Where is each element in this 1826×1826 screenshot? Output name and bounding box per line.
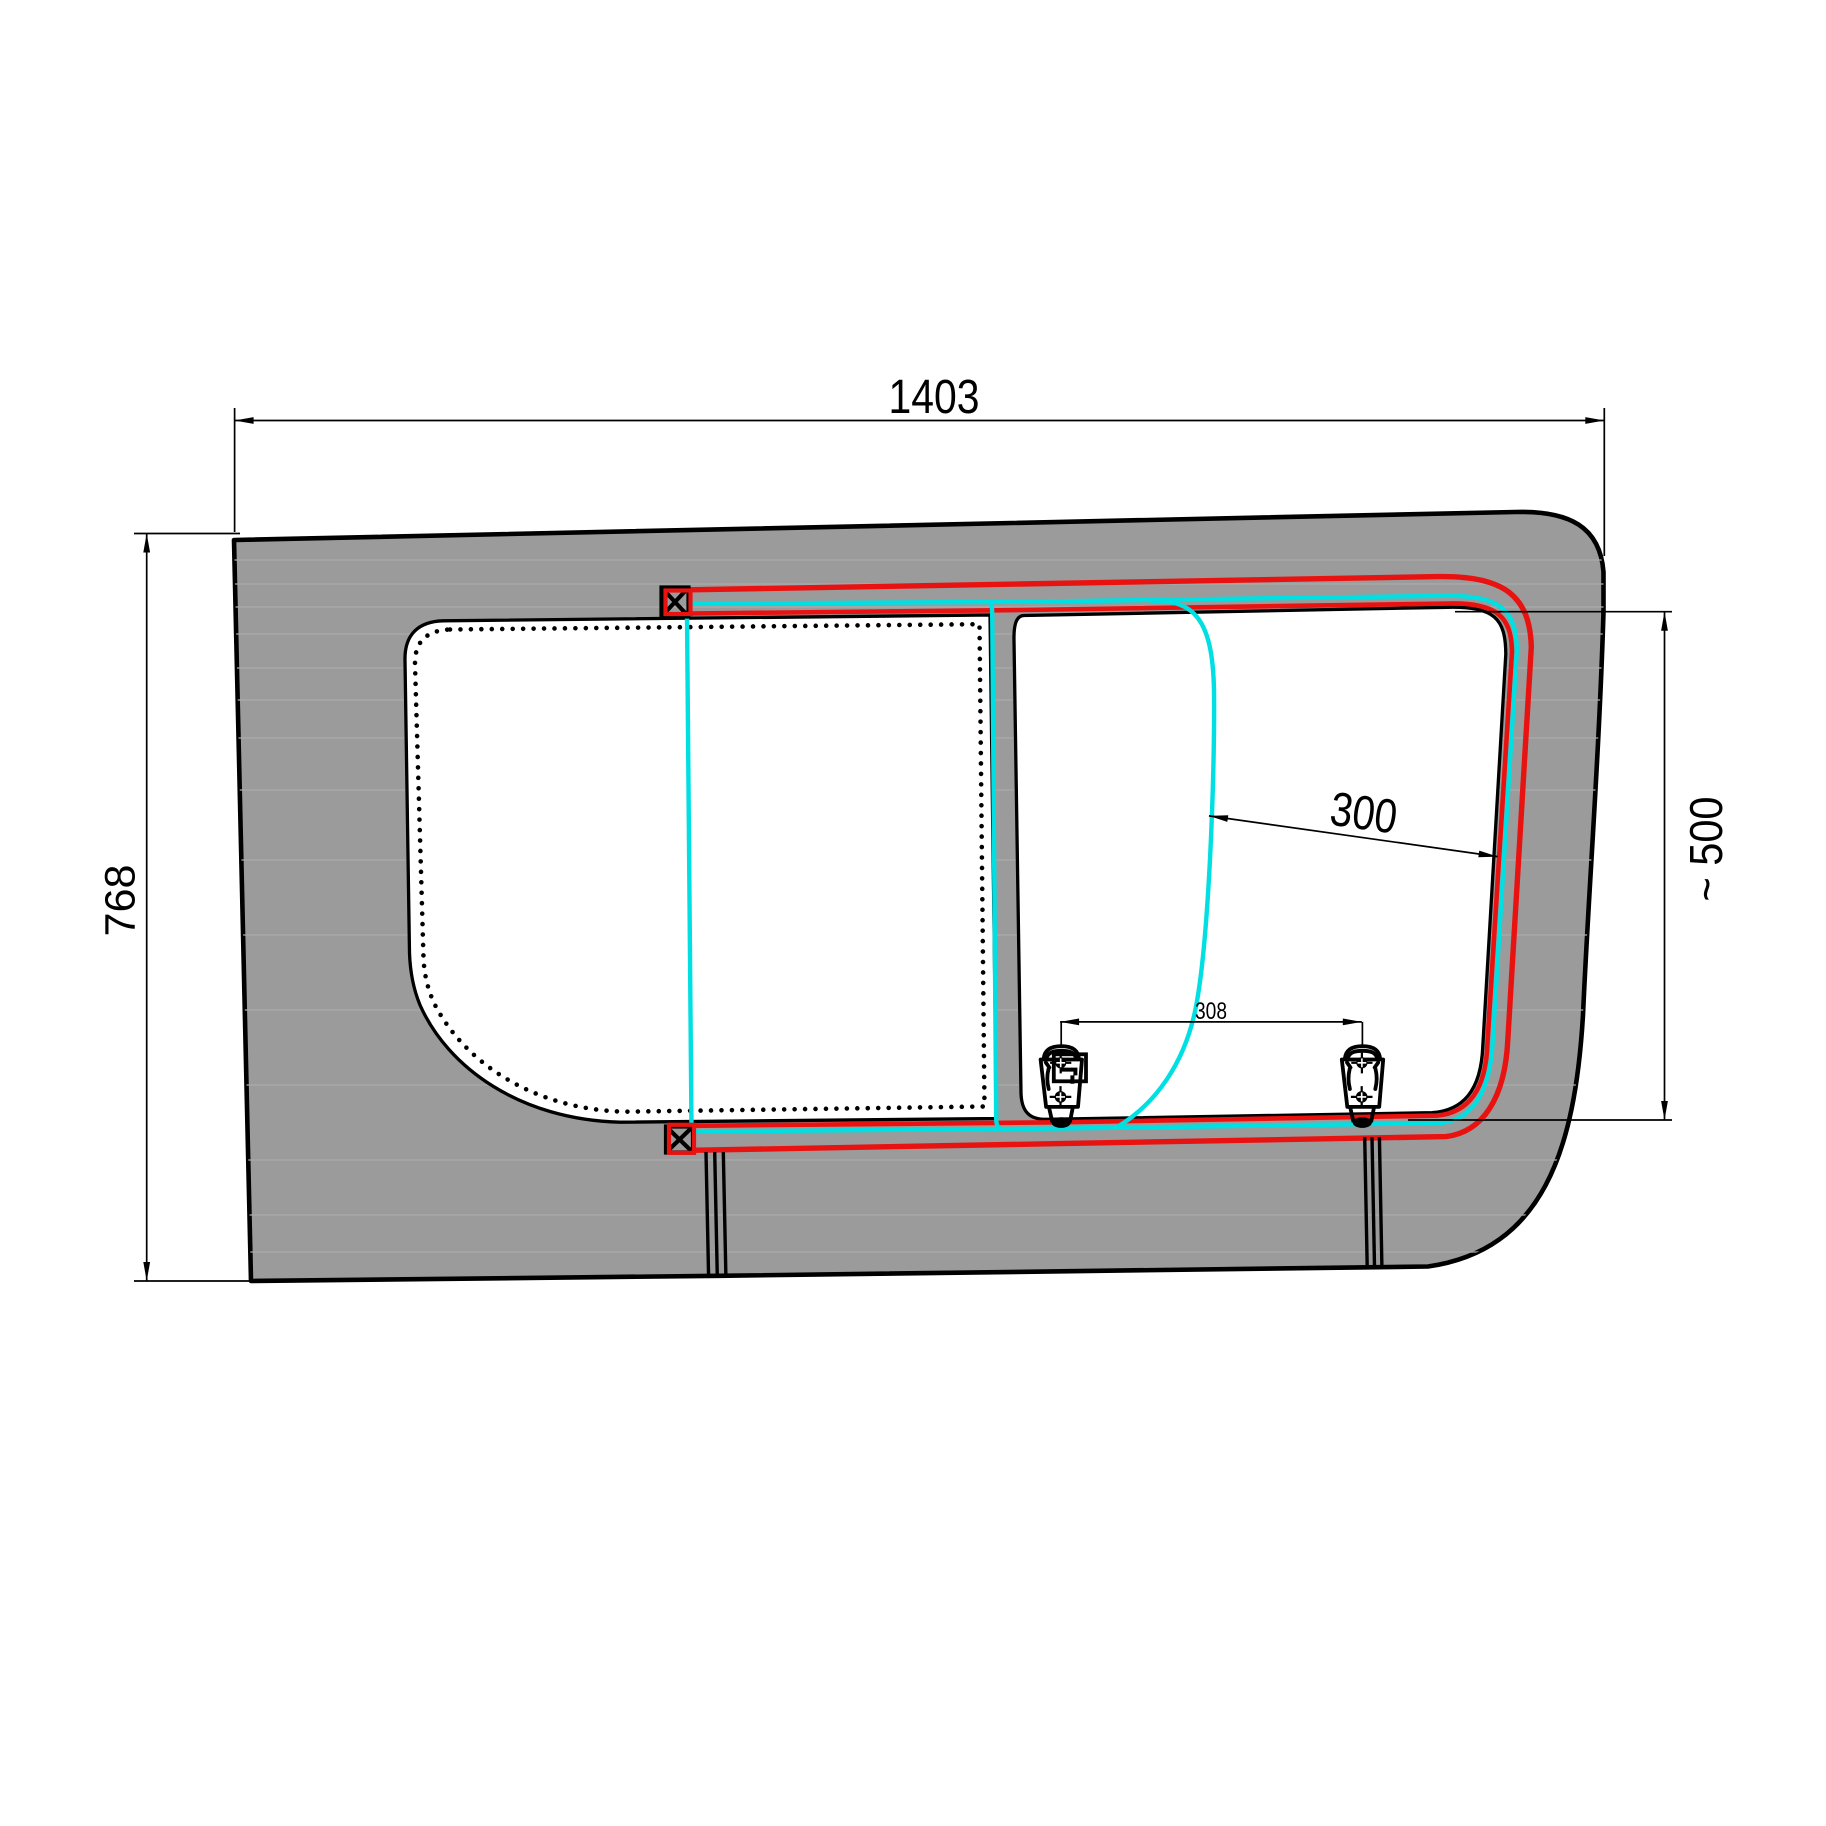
svg-text:300: 300 — [1327, 783, 1401, 845]
svg-text:1403: 1403 — [889, 371, 980, 424]
svg-text:~ 500: ~ 500 — [1680, 797, 1732, 902]
svg-text:768: 768 — [97, 865, 145, 937]
svg-text:308: 308 — [1195, 998, 1227, 1025]
